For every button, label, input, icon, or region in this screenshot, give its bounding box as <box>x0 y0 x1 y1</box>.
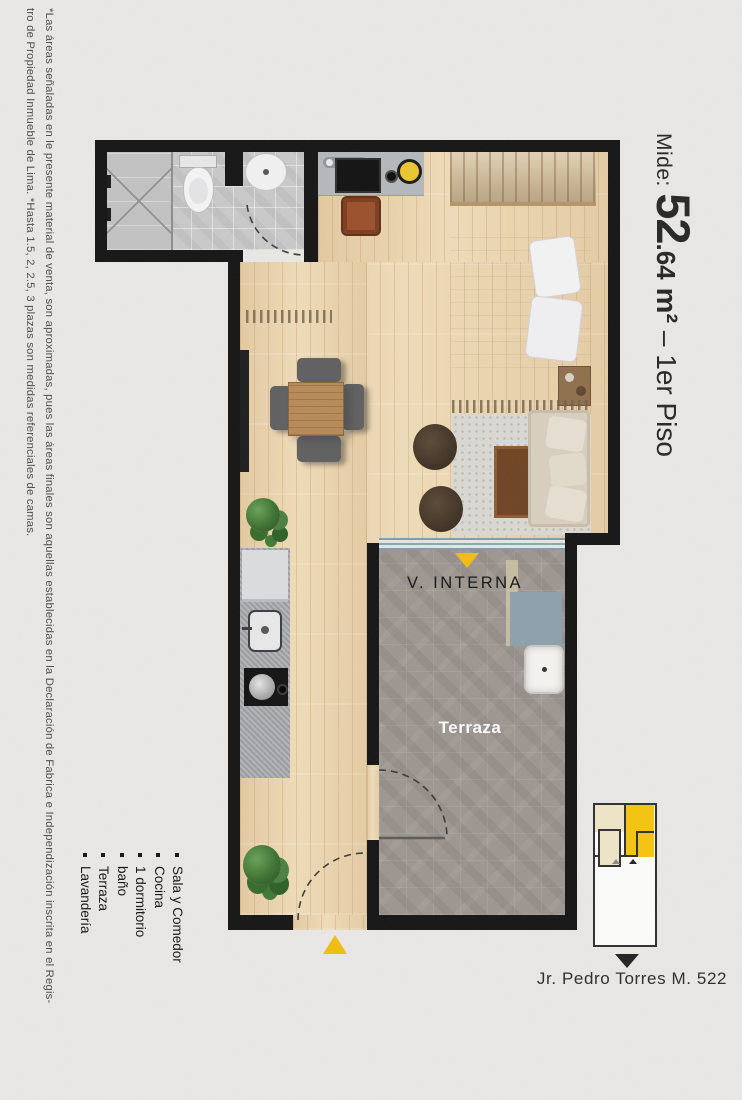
disclaimer-line-2: tro de Propiedad Inmueble de Lima. *Hast… <box>21 8 40 1080</box>
floor-plan: V. INTERNA Terraza <box>95 140 620 930</box>
keyplan-highlighted-unit <box>636 831 654 857</box>
wall <box>95 140 620 152</box>
wall <box>228 915 293 930</box>
wall <box>225 152 243 186</box>
entrance-arrow-icon <box>323 935 347 954</box>
keyplan-divider <box>624 805 626 856</box>
keyplan-unit-marker-icon <box>612 859 620 864</box>
wall <box>608 140 620 545</box>
title-floor: – 1er Piso <box>651 323 682 457</box>
keyplan <box>593 803 657 947</box>
street-arrow-icon <box>615 954 639 968</box>
disclaimer-line-1: *Las áreas señaladas en le presente mate… <box>40 8 59 1080</box>
room-label: Lavandería <box>76 866 94 934</box>
wall <box>367 915 577 930</box>
room-list-item: Lavandería <box>76 853 94 1003</box>
wall <box>95 140 107 262</box>
title-area-int: 52 <box>647 193 700 243</box>
wall <box>367 840 379 920</box>
wall <box>304 152 318 262</box>
wall <box>565 533 620 545</box>
wall <box>367 543 379 765</box>
title-area-dec: .64 <box>651 243 681 279</box>
keyplan-neighbor-unit <box>595 805 625 832</box>
wall <box>565 545 577 930</box>
disclaimer-text: *Las áreas señaladas en le presente mate… <box>21 8 58 1080</box>
title-unit: m² <box>650 280 682 324</box>
wall <box>95 250 243 262</box>
list-bullet-icon <box>83 853 87 857</box>
page-title: Mide: 52.64 m² – 1er Piso <box>646 133 701 563</box>
wall <box>228 262 240 930</box>
title-prefix: Mide: <box>652 133 675 193</box>
street-label: Jr. Pedro Torres M. 522 <box>520 969 742 989</box>
keyplan-unit-marker-icon <box>629 859 637 864</box>
